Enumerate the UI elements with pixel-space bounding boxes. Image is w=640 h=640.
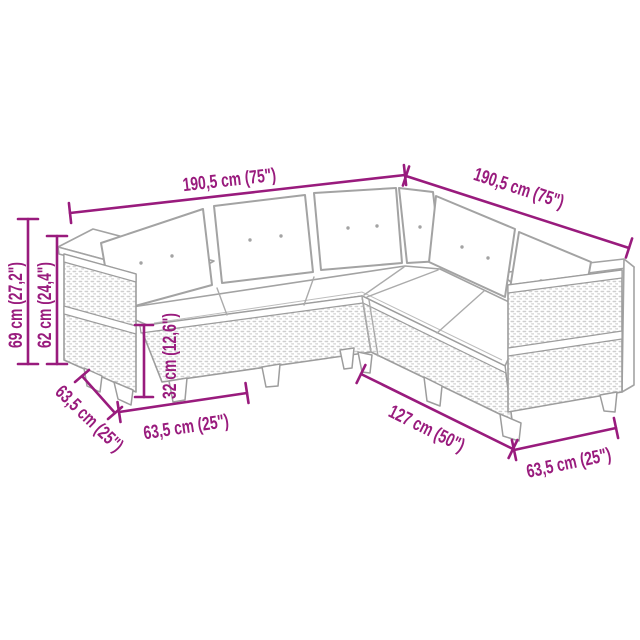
sofa-leg bbox=[500, 414, 521, 441]
sofa-leg bbox=[600, 392, 617, 412]
dimension-label-back-height: 62 cm (24,4") bbox=[34, 262, 56, 348]
cushion-button bbox=[486, 256, 489, 259]
dimension-right-end-depth: 63,5 cm (25") bbox=[512, 418, 618, 482]
right-armrest bbox=[500, 270, 622, 441]
back-cushion bbox=[214, 195, 313, 283]
sofa-leg bbox=[262, 364, 280, 387]
dimension-label-right-end-depth: 63,5 cm (25") bbox=[524, 443, 613, 482]
cushion-button bbox=[460, 245, 463, 248]
cushion-button bbox=[279, 234, 282, 237]
dimension-label-seat-height: 32 cm (12,6") bbox=[159, 313, 181, 399]
right-armrest-side-face bbox=[622, 259, 634, 392]
cushion-button bbox=[170, 254, 173, 257]
product-dimension-diagram: 190,5 cm (75") 190,5 cm (75") 69 cm (27,… bbox=[0, 0, 640, 640]
dimension-diagram-svg: 190,5 cm (75") 190,5 cm (75") 69 cm (27,… bbox=[0, 0, 640, 640]
cushion-button bbox=[346, 226, 349, 229]
cushion-button bbox=[418, 225, 421, 228]
dimension-label-left-front-width: 63,5 cm (25") bbox=[142, 410, 230, 444]
sofa-illustration bbox=[58, 188, 634, 441]
cushion-button bbox=[375, 224, 378, 227]
dimension-label-right-front-width: 127 cm (50") bbox=[385, 400, 468, 456]
sofa-leg bbox=[340, 348, 354, 369]
back-cushion bbox=[314, 188, 402, 270]
cushion-button bbox=[248, 238, 251, 241]
cushion-button bbox=[139, 261, 142, 264]
sofa-leg bbox=[358, 352, 372, 373]
dimension-label-top-right-length: 190,5 cm (75") bbox=[471, 163, 567, 213]
dimension-label-overall-height: 69 cm (27,2") bbox=[5, 262, 27, 348]
